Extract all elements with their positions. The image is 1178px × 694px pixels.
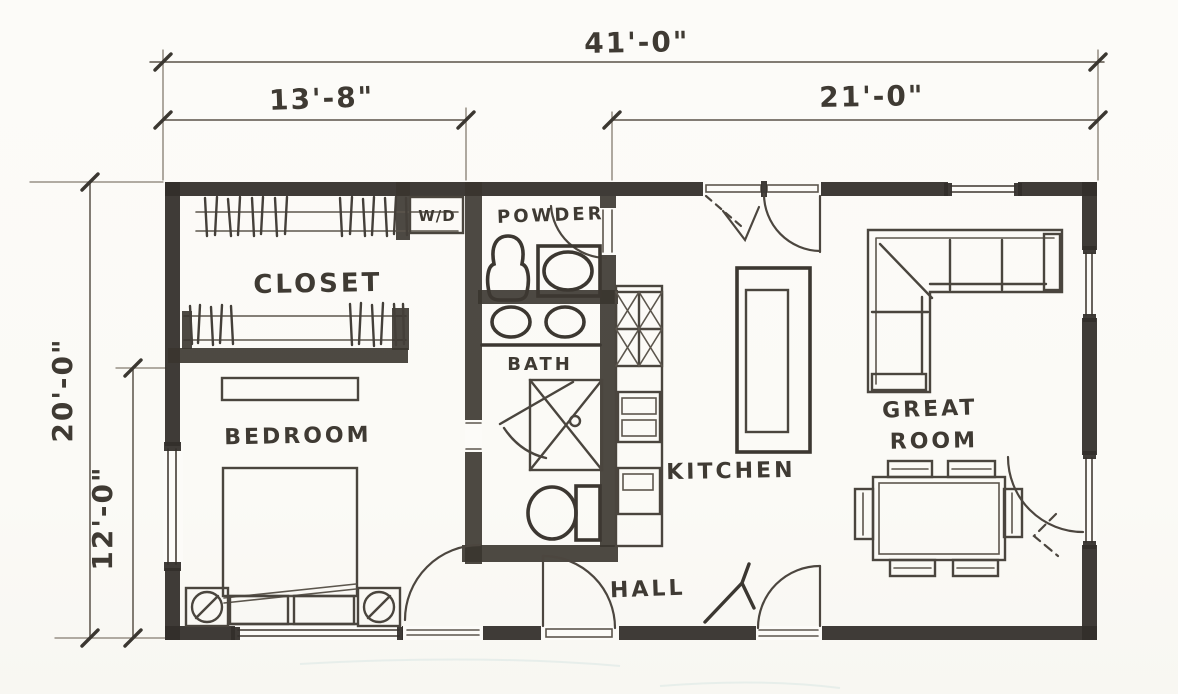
wall-hall-north [462, 545, 618, 562]
pantry-cabinet [616, 292, 662, 366]
bath-toilet [528, 486, 600, 540]
dim-right-section-label: 21'-0" [819, 79, 925, 114]
powder-vanity [538, 246, 600, 296]
nightstand-left [186, 588, 228, 626]
dim-overall-depth: 20'-0" [46, 174, 98, 646]
floor-plan-canvas: 41'-0" 13'-8" 21'-0" 20'-0" 12'-0" [0, 0, 1178, 694]
dim-right-section: 21'-0" [604, 79, 1106, 128]
great-room-label-line2: ROOM [890, 428, 979, 455]
dim-overall-depth-label: 20'-0" [46, 337, 79, 442]
closet-label: CLOSET [253, 268, 383, 300]
dining-table [873, 477, 1005, 560]
hall-label: HALL [610, 576, 686, 604]
kitchen-island [737, 268, 810, 452]
dim-bedroom-depth: 12'-0" [86, 360, 141, 646]
bath-label: BATH [507, 354, 573, 375]
bedroom-furniture [186, 378, 400, 626]
wall-left [165, 182, 180, 640]
bath-fixtures [482, 307, 602, 540]
dim-left-section: 13'-8" [155, 80, 474, 128]
great-room-right-window [1082, 246, 1097, 322]
range [618, 392, 660, 442]
sectional-sofa [868, 230, 1062, 392]
dining-chairs [855, 461, 1022, 576]
dim-bedroom-depth-label: 12'-0" [86, 465, 119, 570]
front-door [541, 556, 619, 640]
dim-left-section-label: 13'-8" [269, 80, 375, 117]
shower [500, 380, 602, 470]
kitchen-appliance [618, 468, 660, 514]
floor-plan-sheet: 41'-0" 13'-8" 21'-0" 20'-0" 12'-0" [0, 0, 1178, 694]
washer-dryer-label: W/D [418, 207, 455, 225]
bed-blanket-lines [224, 584, 356, 603]
bedroom-label: BEDROOM [224, 423, 372, 451]
great-room-top-window [944, 182, 1022, 196]
dining-chair [855, 489, 873, 539]
scan-artifact [300, 659, 840, 688]
entry-arrow [705, 564, 754, 622]
kitchen-label: KITCHEN [666, 458, 796, 485]
dresser [222, 378, 358, 400]
dim-overall-width-label: 41'-0" [584, 25, 690, 60]
kitchen-fixtures [616, 268, 810, 546]
wall-closet-bedroom [168, 348, 408, 363]
bath-vanity-sinks [482, 307, 600, 345]
dim-overall-width: 41'-0" [150, 25, 1106, 70]
entry-double-door [703, 181, 821, 252]
hall-rear-door [756, 566, 822, 640]
bedroom-left-window [163, 442, 183, 571]
great-room-label-line1: GREAT [882, 395, 978, 423]
doors [403, 181, 1097, 640]
bedroom-bottom-window [231, 626, 406, 640]
powder-label: POWDER [497, 203, 605, 228]
bed [223, 468, 357, 596]
nightstand-right [358, 588, 400, 626]
bath-opening [465, 420, 482, 452]
closet-rod-island [182, 303, 409, 350]
